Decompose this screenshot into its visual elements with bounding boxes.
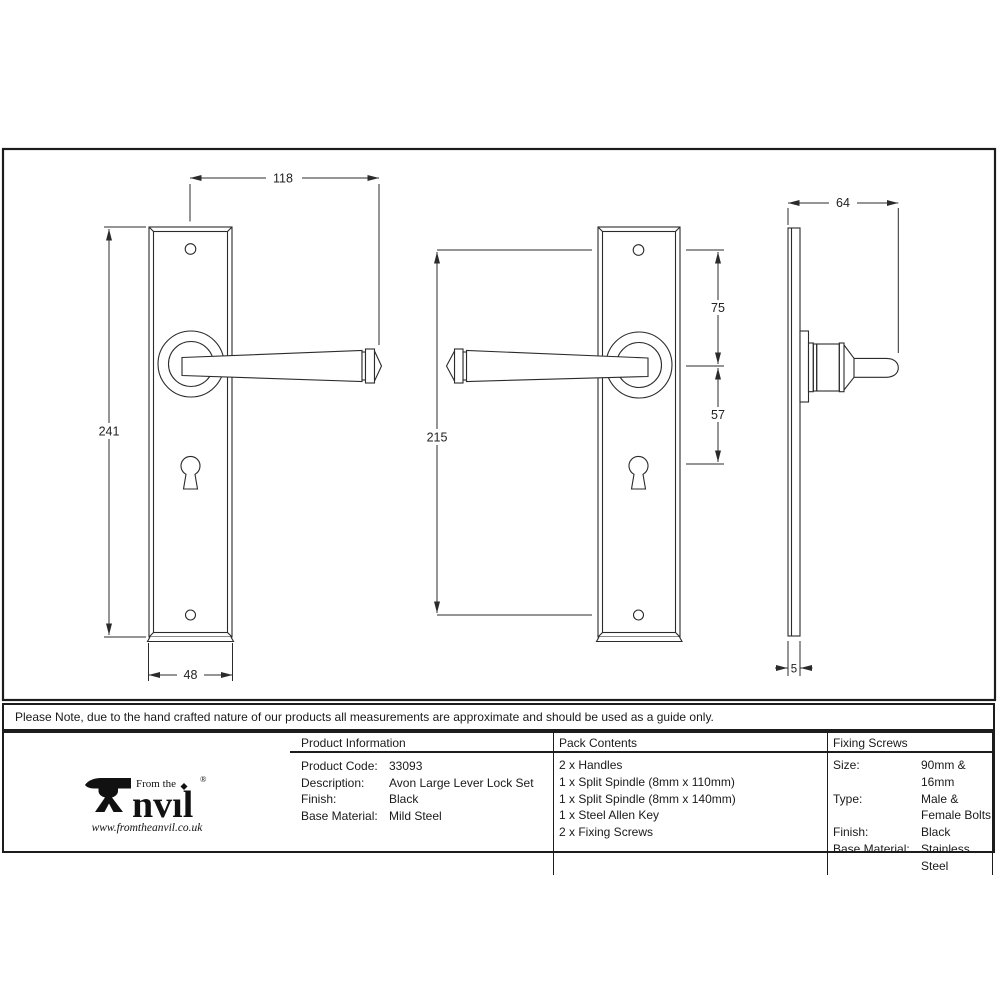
keyhole [181,456,200,489]
table-row: Base Material: Stainless Steel [833,841,992,875]
front-view-drawing [148,227,382,642]
backplate-outline [598,227,680,637]
pack-contents-cell: 2 x Handles 1 x Split Spindle (8mm x 110… [554,753,828,875]
rose-barrel [817,344,840,391]
list-item: 2 x Fixing Screws [559,824,827,841]
note-bar: Please Note, due to the hand crafted nat… [2,703,995,731]
dim-screw-centres: 215 [427,431,448,445]
dim-plate-width: 48 [184,668,198,682]
rose-mount-block [800,331,809,402]
rose-ring-1 [809,343,814,392]
logo-website: www.fromtheanvil.co.uk [92,822,204,834]
table-row: Finish: Black [301,791,553,808]
dim-screw-to-centre: 75 [711,301,725,315]
from-the-anvil-logo: From the ® nvıl www.fromtheanvil.co.uk [85,772,209,835]
table-row: Base Material: Mild Steel [301,808,553,825]
reverse-view-drawing [447,227,683,642]
extension-lines-215 [437,250,592,615]
dim-width-to-tip: 118 [273,172,293,186]
product-information-cell: Product Code: 33093 Description: Avon La… [290,753,554,875]
rose-end-ring [839,343,844,392]
note-text: Please Note, due to the hand crafted nat… [15,710,714,724]
dim-projection: 64 [836,196,850,210]
table-row: Size: 90mm & 16mm [833,757,992,791]
lever-cap [455,349,464,383]
registered-mark: ® [200,774,207,784]
dim-centre-to-keyhole: 57 [711,408,725,422]
list-item: 2 x Handles [559,757,827,774]
backplate-base-edge [148,637,234,642]
keyhole [629,456,648,489]
anvil-icon [85,778,131,812]
lever-neck-taper [844,345,854,390]
lever-finial [375,351,382,381]
backplate-outline [149,227,232,637]
table-row: Finish: Black [833,824,992,841]
list-item: 1 x Split Spindle (8mm x 140mm) [559,791,827,808]
fixing-screws-cell: Size: 90mm & 16mm Type: Male & Female Bo… [828,753,993,875]
header-pack-contents: Pack Contents [554,733,828,753]
logo-cell: From the ® nvıl www.fromtheanvil.co.uk [4,733,290,875]
table-row: Type: Male & Female Bolts [833,791,992,825]
table-row: Description: Avon Large Lever Lock Set [301,775,553,792]
lever-profile [854,358,898,377]
list-item: 1 x Split Spindle (8mm x 110mm) [559,774,827,791]
list-item: 1 x Steel Allen Key [559,807,827,824]
header-fixing-screws: Fixing Screws [828,733,993,753]
lever-finial [447,351,455,381]
header-product-information: Product Information [290,733,554,753]
backplate-base-edge [597,637,683,642]
reverse-view-dimensions: 215 75 57 [420,250,731,615]
logo-brand-text: nvıl [132,784,193,826]
spec-sheet: 118 241 48 [0,0,1000,1000]
backplate-profile [788,228,800,636]
dim-plate-thickness: 5 [791,664,797,676]
table-row: Product Code: 33093 [301,758,553,775]
front-view-dimensions: 118 241 48 [92,170,379,682]
side-view-drawing [788,228,898,636]
lever-cap [366,349,375,383]
info-table: Product Information Pack Contents Fixing… [2,731,995,853]
dim-plate-height: 241 [99,425,120,439]
